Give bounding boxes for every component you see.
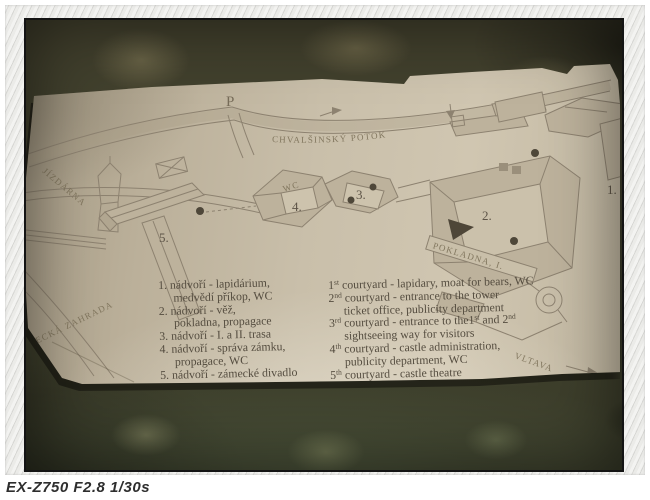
poi-dot — [370, 184, 377, 191]
courtyard-2-label: 2. — [482, 208, 492, 223]
courtyard-1-label: 1. — [607, 182, 617, 197]
legend-czech: 1. nádvoří - lapidárium, medvědí příkop,… — [158, 276, 313, 382]
courtyard-3-label: 3. — [356, 187, 366, 202]
stream-arrow-icon — [332, 107, 342, 115]
legend-english: 1st courtyard - lapidary, moat for bears… — [328, 274, 551, 381]
small-structure — [499, 163, 508, 171]
photo-page: P CHVALŠINSKÝ POTOK JÍZDÁRNA ZÁMECKÁ ZAH… — [0, 0, 650, 500]
poi-dot — [510, 237, 518, 245]
paper-crease — [52, 342, 134, 382]
poi-dot — [196, 207, 204, 215]
cloak-tower — [98, 163, 121, 204]
photo-frame: P CHVALŠINSKÝ POTOK JÍZDÁRNA ZÁMECKÁ ZAH… — [0, 0, 650, 480]
photo-caption: EX-Z750 F2.8 1/30s — [6, 479, 646, 500]
parking-label: P — [226, 94, 234, 110]
courtyard-5-label: 5. — [159, 230, 169, 245]
small-structure — [512, 166, 521, 174]
poi-dot — [348, 197, 355, 204]
hatched-box — [156, 157, 188, 179]
courtyard-4-label: 4. — [292, 199, 302, 214]
bridge-lines — [26, 230, 106, 249]
photo-of-map-on-carpet: P CHVALŠINSKÝ POTOK JÍZDÁRNA ZÁMECKÁ ZAH… — [24, 18, 624, 472]
riding-hall-label: JÍZDÁRNA — [41, 166, 88, 208]
poi-dot — [531, 149, 539, 157]
river-arrow — [566, 366, 588, 372]
map-paper: P CHVALŠINSKÝ POTOK JÍZDÁRNA ZÁMECKÁ ZAH… — [24, 60, 620, 390]
